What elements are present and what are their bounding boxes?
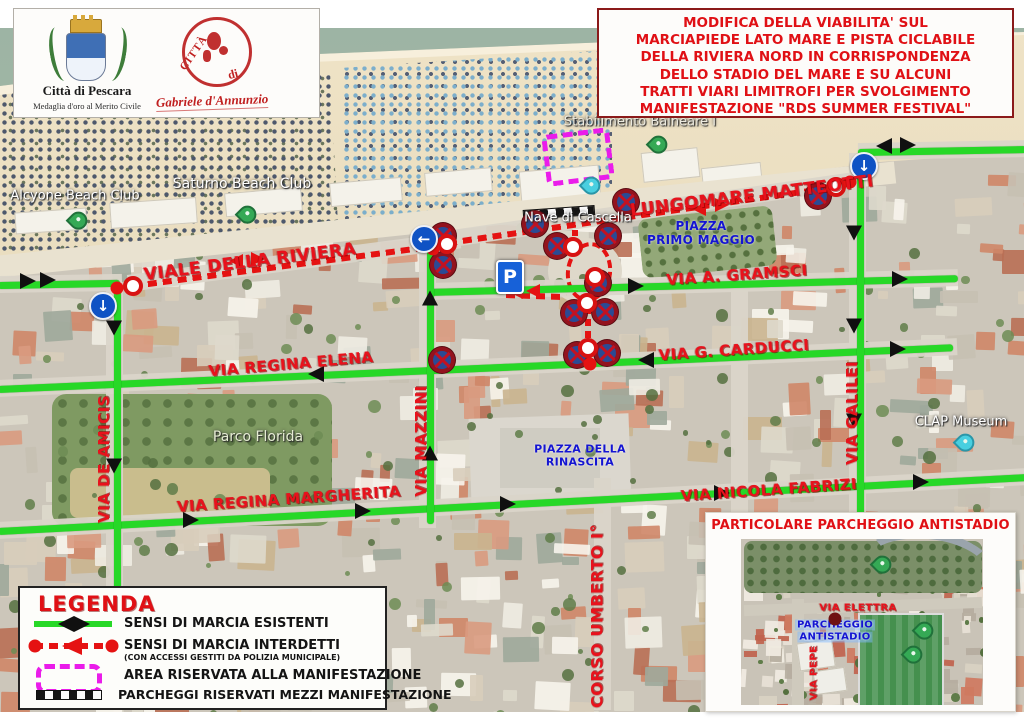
street-label-riviera: VIALE DELLA RIVIERA [143,239,358,285]
title-line: DELLA RIVIERA NORD IN CORRISPONDENZA [599,49,1012,66]
legend-item-4: PARCHEGGI RISERVATI MEZZI MANIFESTAZIONE [118,687,452,702]
inset-label-pepe: VIA PEPE [809,645,820,700]
inset-tree [779,679,784,684]
legend-stripe-icon [36,690,102,700]
title-line: MARCIAPIEDE LATO MARE E PISTA CICLABILE [599,32,1012,49]
inset-building [965,664,983,674]
street-label-galilei: VIA GALILEI [843,361,861,465]
legend-red-dot-left-icon [29,640,42,653]
title-line: MODIFICA DELLA VIABILITA' SUL [599,15,1012,32]
legend-red-dot-right-icon [106,640,119,653]
inset-building [966,648,981,655]
place-label-alcyone: Alcyone Beach Club [10,189,139,204]
place-label-parco-florida: Parco Florida [213,429,303,445]
inset-building [744,651,756,657]
inset-label-antistadio: ANTISTADIO [797,632,872,643]
street-label-elena: VIA REGINA ELENA [208,348,374,380]
inset-building [961,687,974,704]
inset-tree [776,594,781,599]
inset-box: PARTICOLARE PARCHEGGIO ANTISTADIO VIA EL… [705,512,1016,712]
crest-title: Città di Pescara [22,83,152,99]
street-label-lungomare: LUNGOMARE MATTEOTTI [629,171,875,221]
place-label-piazza-primo-1: PIAZZA [675,219,726,233]
traffic-map-poster: P ↓←↓ VIALE DELLA RIVIERA LUNGOMARE MATT… [0,0,1024,724]
title-box: MODIFICA DELLA VIABILITA' SUL MARCIAPIED… [597,8,1014,118]
inset-building [943,637,949,645]
legend-title: LEGENDA [38,592,156,616]
stamp-signature: Gabriele d'Annunzio [156,91,269,112]
crown-icon [70,19,102,33]
municipality-logo-box: Città di Pescara Medaglia d'oro al Merit… [13,8,320,118]
street-label-mazzini: VIA MAZZINI [412,385,430,497]
inset-building [756,629,765,644]
inset-building [823,693,840,705]
title-line: TRATTI VIARI LIMITROFI PER SVOLGIMENTO [599,84,1012,101]
place-label-piazza-primo-2: PRIMO MAGGIO [647,233,755,247]
place-label-saturno: Saturno Beach Club [173,176,311,192]
inset-tree [951,693,960,702]
legend-item-2: SENSI DI MARCIA INTERDETTI [124,638,340,653]
inset-building [762,675,773,686]
title-line: MANIFESTAZIONE "RDS SUMMER FESTIVAL" [599,101,1012,118]
street-label-margherita: VIA REGINA MARGHERITA [176,482,401,516]
stamp-figure-dot [219,46,228,55]
inset-building [944,660,954,667]
legend-red-arrow-icon [62,637,82,655]
inset-tree [980,648,983,657]
crest-subtitle: Medaglia d'oro al Merito Civile [14,101,160,111]
inset-tree [758,660,763,665]
street-label-carducci: VIA G. CARDUCCI [658,336,810,365]
street-label-gramsci: VIA A. GRAMSCI [666,261,809,289]
inset-building [766,639,782,657]
place-label-clap-museum: CLAP Museum [915,415,1008,430]
place-label-piazza-rin-1: PIAZZA DELLA [534,443,626,456]
pescara-crest-icon [66,33,106,81]
inset-building [741,669,747,687]
inset-tree [783,689,789,695]
inset-tree [979,617,983,623]
place-label-piazza-rin-2: RINASCITA [546,456,614,469]
legend-black-arrow-left-icon [58,616,74,632]
inset-closure-dot-icon [829,613,842,626]
street-label-umberto: CORSO UMBERTO I° [588,524,607,708]
inset-tree [877,592,881,596]
legend-black-arrow-right-icon [74,616,90,632]
inset-building [759,696,777,705]
inset-tree [965,620,969,624]
street-label-fabrizi: VIA NICOLA FABRIZI [680,475,857,505]
legend-item-2-sub: (CON ACCESSI GESTITI DA POLIZIA MUNICIPA… [124,653,340,662]
title-line: DELLO STADIO DEL MARE E SU ALCUNI [599,67,1012,84]
inset-title: PARTICOLARE PARCHEGGIO ANTISTADIO [706,518,1015,533]
inset-label-elettra: VIA ELETTRA [819,603,897,614]
legend-item-3: AREA RISERVATA ALLA MANIFESTAZIONE [124,668,421,683]
stamp-figure-dot2 [203,50,211,62]
street-label-deamicis: VIA DE AMICIS [95,395,113,523]
legend-box: LEGENDA SENSI DI MARCIA ESISTENTI SENSI … [18,586,387,710]
legend-item-1: SENSI DI MARCIA ESISTENTI [124,616,329,631]
place-label-nave: Nave di Cascella [524,211,632,226]
